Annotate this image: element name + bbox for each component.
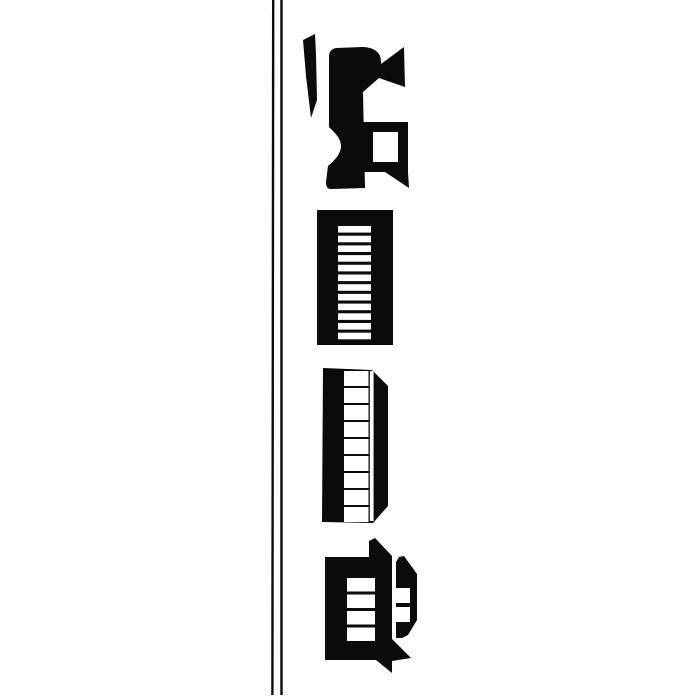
boxcar-slat-11 (338, 323, 371, 330)
caboose-window-3 (347, 611, 375, 625)
locomotive-cab-frame (363, 122, 408, 172)
boxcar-slat-1 (338, 226, 371, 233)
locomotive-cab-eave (385, 172, 409, 188)
boxcar-slat-4 (338, 255, 371, 262)
boxcar-slat-6 (338, 275, 371, 282)
page-canvas (0, 0, 700, 700)
boxcar-slat-3 (338, 245, 371, 252)
coach-window-5 (344, 439, 369, 454)
coach-window-6 (344, 456, 369, 471)
train-illustration (0, 0, 700, 700)
boxcar-slat-10 (338, 313, 371, 320)
caboose-window-4 (347, 628, 375, 642)
boxcar-slat-7 (338, 284, 371, 291)
caboose-skirt (376, 660, 392, 673)
boxcar-slat-8 (338, 294, 371, 301)
boxcar-slat-12 (338, 333, 371, 340)
boxcar-slat-9 (338, 304, 371, 311)
coach-window-1 (344, 371, 369, 386)
coach-window-4 (344, 422, 369, 437)
caboose-cupola-window-2 (396, 607, 410, 622)
coach-window-3 (344, 405, 369, 420)
coach-window-9 (344, 507, 369, 522)
coach-side-strip (370, 371, 374, 521)
locomotive-pilot-blade (303, 34, 317, 118)
caboose-window-1 (347, 578, 375, 592)
boxcar-slat-2 (338, 236, 371, 243)
caboose-window-2 (347, 595, 375, 609)
caboose-cupola-window-1 (396, 588, 410, 603)
boxcar-slat-5 (338, 265, 371, 272)
coach-window-2 (344, 388, 369, 403)
coach-window-8 (344, 490, 369, 505)
caboose-roof-lower (392, 639, 411, 661)
coach-window-7 (344, 473, 369, 488)
rail-line-outer (272, 0, 273, 695)
